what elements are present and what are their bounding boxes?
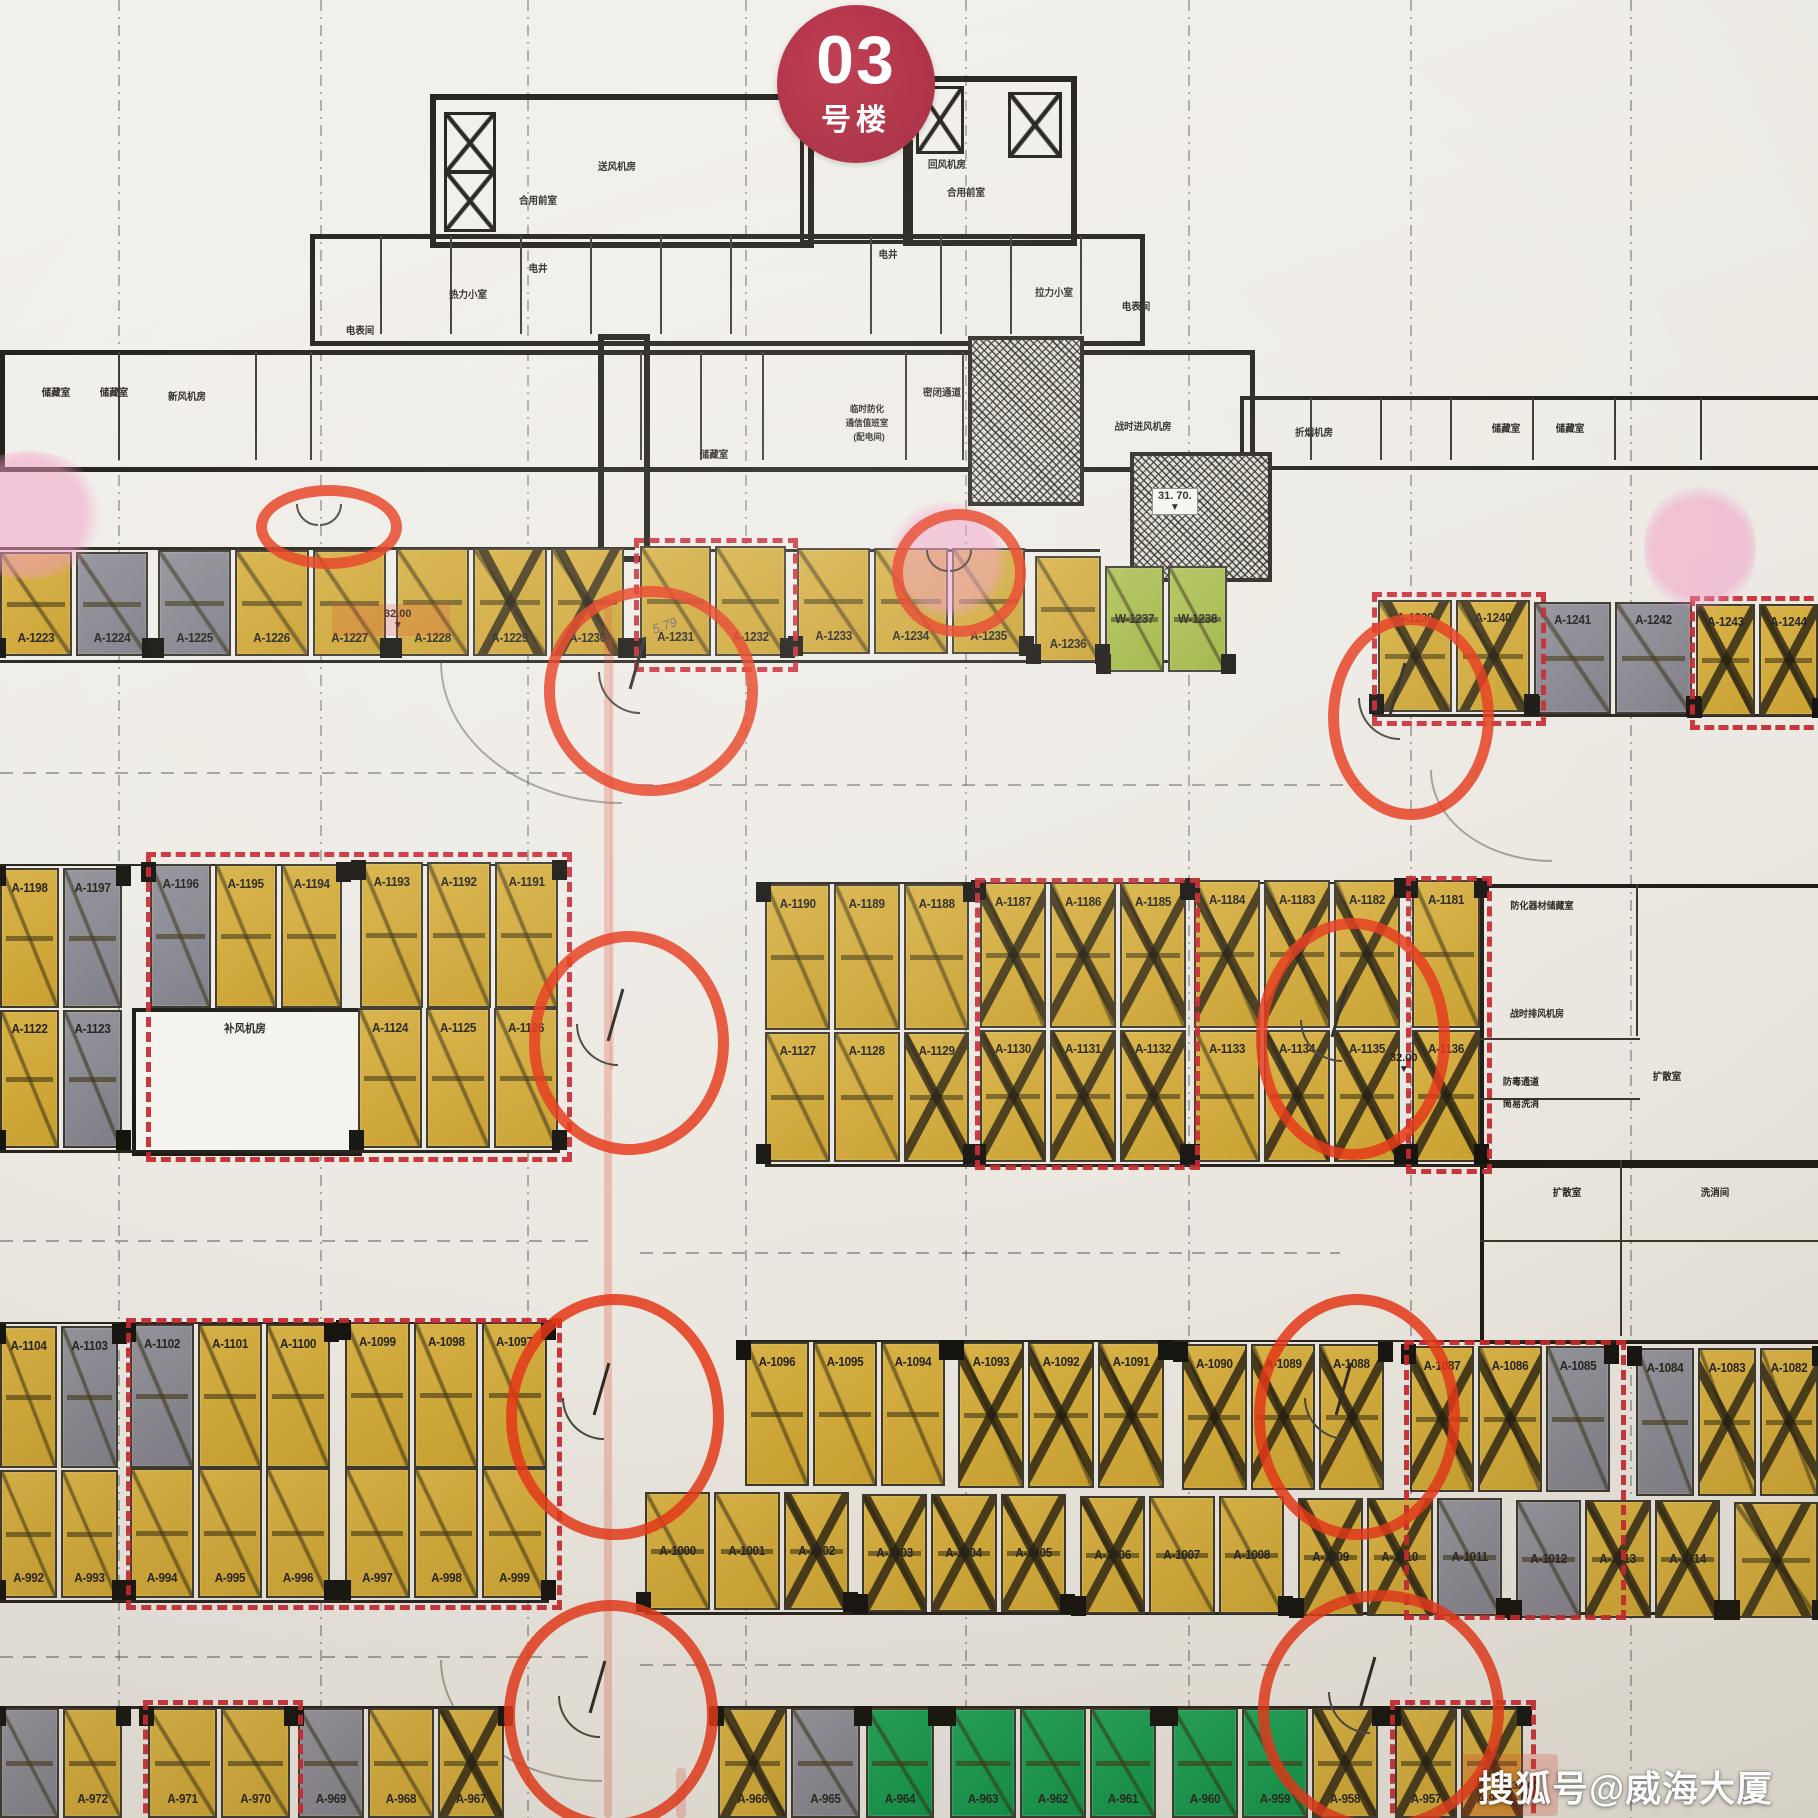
parking-block: A-1236: [1035, 556, 1101, 662]
parking-stall: A-1083: [1698, 1348, 1756, 1496]
stall-label: A-965: [796, 1791, 855, 1806]
building-number: 03: [777, 21, 935, 99]
wall-partition: [310, 352, 312, 460]
stall-label: A-1241: [1540, 612, 1606, 627]
structural-column: [1289, 1598, 1304, 1618]
stall-label: A-1004: [936, 1545, 991, 1560]
stall-bumper-line: [1200, 1094, 1253, 1099]
stall-bumper-line: [887, 1412, 939, 1417]
stall-label: A-1003: [867, 1545, 922, 1560]
structural-column: [1163, 1706, 1178, 1726]
stall-label: A-961: [1095, 1791, 1151, 1806]
parking-stall: A-1190: [765, 884, 830, 1030]
wall-partition: [590, 236, 592, 334]
triangle-down-icon: ▼: [1158, 502, 1192, 513]
wall-partition: [1636, 884, 1638, 1036]
stall-label: A-1103: [66, 1338, 114, 1353]
structural-column: [941, 1706, 956, 1726]
stall-bumper-line: [6, 1077, 53, 1082]
structural-column: [1158, 1340, 1173, 1360]
parking-stall: A-1127: [765, 1032, 830, 1162]
parking-stall: A-1233: [797, 548, 870, 654]
parking-stall: A-1104: [0, 1326, 57, 1468]
parking-block: A-1096A-1095A-1094: [745, 1342, 945, 1486]
stall-label: A-960: [1177, 1791, 1233, 1806]
red-annotation-circle: [892, 509, 1026, 637]
stall-bumper-line: [1026, 1761, 1079, 1766]
building-wall: [1480, 884, 1818, 1168]
room-label: 密闭通道: [912, 384, 973, 399]
aisle-centerline: [640, 784, 1360, 786]
stall-label: A-1093: [963, 1354, 1019, 1369]
structural-column: [857, 1706, 872, 1726]
stall-label: A-1224: [81, 630, 142, 645]
structural-column: [736, 1340, 751, 1360]
structural-column: [1096, 654, 1111, 674]
building-wall: [1480, 1160, 1818, 1344]
structural-column: [756, 1144, 771, 1164]
red-annotation-circle: [256, 485, 402, 569]
parking-stall: A-1225: [158, 550, 231, 656]
structural-column: [387, 638, 402, 658]
parking-stall: A-1003: [862, 1494, 927, 1612]
stall-label: A-1242: [1621, 612, 1687, 627]
room-label: 电井: [869, 246, 907, 261]
parking-stall: A-1133: [1194, 1030, 1260, 1162]
elevator-shaft-icon: [444, 170, 496, 232]
room-label: 战时排风机房: [1489, 1006, 1586, 1020]
stall-bumper-line: [242, 601, 302, 606]
wall-partition: [700, 352, 702, 460]
stall-label: A-993: [66, 1570, 114, 1585]
structural-column: [1173, 1342, 1188, 1362]
parking-stall: A-1002: [784, 1492, 849, 1610]
stall-bumper-line: [872, 1761, 927, 1766]
stall-label: A-1236: [1040, 636, 1096, 651]
red-annotation-circle: [1254, 1294, 1460, 1540]
parking-stall: A-967: [438, 1708, 504, 1818]
red-annotation-circle: [1328, 614, 1494, 820]
aisle-centerline: [640, 1252, 1340, 1254]
stall-label: A-992: [5, 1570, 53, 1585]
stall-bumper-line: [1541, 656, 1604, 661]
room-label: 战时进风机房: [1098, 418, 1187, 433]
red-dashed-outline: [146, 852, 572, 1162]
stall-label: A-1001: [719, 1543, 774, 1558]
stall-bumper-line: [1041, 607, 1094, 612]
parking-stall: A-1090: [1182, 1344, 1247, 1490]
parking-stall: A-1001: [714, 1492, 779, 1610]
parking-block: A-964: [866, 1708, 934, 1818]
structural-column: [0, 1130, 6, 1150]
parking-stall: A-1094: [881, 1342, 945, 1486]
room-label: 临时防化: [838, 402, 897, 415]
parking-stall: A-1197: [63, 868, 122, 1008]
wall-partition: [450, 236, 452, 334]
stall-label: A-972: [68, 1791, 118, 1806]
parking-stall: A-1093: [958, 1342, 1024, 1488]
parking-block: A-1241A-1242: [1534, 602, 1692, 714]
stall-label: A-1197: [68, 880, 118, 895]
parking-block: A-963A-962A-961: [950, 1708, 1156, 1818]
structural-column: [0, 1580, 6, 1600]
wall-partition: [905, 352, 907, 460]
parking-floor-plan: 03 号楼 搜狐号@威海大厦 储藏室储藏室新风机房电表间热力小室电井合用前室送风…: [0, 0, 1818, 1818]
parking-block: [1734, 1502, 1818, 1618]
stall-bumper-line: [771, 955, 824, 960]
room-label: 新风机房: [154, 388, 221, 403]
stall-bumper-line: [819, 1412, 871, 1417]
structural-column: [1812, 1346, 1818, 1366]
stall-label: A-1225: [163, 630, 225, 645]
wall-partition: [730, 236, 732, 334]
red-annotation-circle: [504, 1600, 718, 1818]
stall-label: A-1233: [802, 628, 864, 643]
stall-bumper-line: [841, 1095, 894, 1100]
structural-column: [949, 1340, 964, 1360]
structural-column: [1026, 644, 1041, 664]
stall-label: A-1090: [1187, 1356, 1242, 1371]
stall-label: A-1007: [1154, 1547, 1209, 1562]
wall-partition: [255, 352, 257, 460]
room-label: 防化器材储藏室: [1489, 898, 1595, 912]
stall-label: A-962: [1025, 1791, 1081, 1806]
wall-partition: [1614, 398, 1616, 460]
parking-stall: A-1095: [813, 1342, 877, 1486]
stall-bumper-line: [804, 599, 864, 604]
parking-block: A-1104A-1103: [0, 1326, 118, 1468]
parking-stall: A-1224: [76, 552, 148, 656]
structural-column: [1627, 1346, 1642, 1366]
stall-bumper-line: [1642, 1420, 1688, 1425]
room-label: 电表间: [1109, 298, 1162, 313]
structural-column: [149, 638, 164, 658]
stall-label: A-966: [723, 1791, 782, 1806]
stall-label: A-969: [303, 1791, 359, 1806]
room-label: 通信值班室: [834, 416, 901, 429]
room-label: 补风机房: [205, 1020, 285, 1036]
stall-label: A-1084: [1641, 1360, 1690, 1375]
stall-bumper-line: [751, 1412, 803, 1417]
parking-block: W-1237W-1238: [1105, 566, 1227, 672]
parking-block: A-969A-968A-967: [298, 1708, 504, 1818]
parking-stall: A-1184: [1194, 880, 1260, 1028]
stall-label: A-1094: [886, 1354, 940, 1369]
stall-label: A-1096: [750, 1354, 804, 1369]
elevation-value: 31. 70.: [1158, 490, 1192, 502]
parking-stall: A-1103: [61, 1326, 118, 1468]
stall-label: A-1008: [1224, 1547, 1279, 1562]
stall-bumper-line: [6, 1761, 53, 1766]
wall-partition: [762, 352, 764, 460]
stall-label: A-1127: [770, 1043, 825, 1058]
parking-stall: A-964: [866, 1708, 934, 1818]
red-annotation-circle: [506, 1294, 724, 1540]
stall-label: A-1091: [1103, 1354, 1159, 1369]
wall-partition: [640, 352, 642, 460]
parking-block: A-972: [0, 1708, 122, 1818]
building-number-suffix: 号楼: [777, 95, 935, 139]
stall-label: A-1082: [1765, 1360, 1814, 1375]
stall-bumper-line: [7, 602, 66, 607]
stall-bumper-line: [6, 1395, 52, 1400]
parking-stall: A-962: [1020, 1708, 1086, 1818]
room-label: 拉力小室: [1024, 284, 1085, 299]
parking-stall: A-1188: [904, 884, 969, 1030]
parking-stall: A-1084: [1636, 1348, 1694, 1496]
parking-block: A-1198A-1197: [0, 868, 122, 1008]
wall-partition: [380, 236, 382, 334]
parking-block: A-1084A-1083A-1082: [1636, 1348, 1818, 1496]
stall-label: A-1014: [1660, 1551, 1715, 1566]
parking-stall: W-1238: [1168, 566, 1227, 672]
building-wall: [310, 234, 1145, 346]
parking-block: A-1093A-1092A-1091: [958, 1342, 1164, 1488]
stall-label: W-1238: [1173, 611, 1223, 626]
structural-column: [1221, 654, 1236, 674]
stall-label: A-964: [871, 1791, 929, 1806]
red-dashed-outline: [1690, 596, 1818, 730]
parking-stall: A-968: [368, 1708, 434, 1818]
red-annotation-circle: [529, 931, 729, 1155]
parking-stall: A-1198: [0, 868, 59, 1008]
wall-partition: [1380, 398, 1382, 460]
wall-partition: [940, 236, 942, 334]
stall-label: A-1104: [5, 1338, 53, 1353]
structural-column: [1812, 1600, 1818, 1620]
stall-label: A-1129: [909, 1043, 964, 1058]
stall-label: A-1133: [1199, 1041, 1255, 1056]
stall-label: A-1083: [1703, 1360, 1752, 1375]
wall-partition: [962, 352, 964, 460]
parking-stall: [1734, 1502, 1818, 1618]
structural-column: [1725, 1600, 1740, 1620]
aisle-centerline: [640, 1664, 1290, 1666]
watermark: 搜狐号@威海大厦: [1478, 1760, 1773, 1812]
stall-label: A-1000: [650, 1543, 705, 1558]
stall-bumper-line: [1096, 1761, 1149, 1766]
red-dashed-outline: [975, 878, 1200, 1170]
parking-stall: A-1122: [0, 1010, 59, 1148]
parking-stall: A-965: [791, 1708, 860, 1818]
room-label: 扩散室: [1641, 1068, 1692, 1083]
wall-partition: [1700, 398, 1702, 460]
red-annotation-circle: [544, 586, 758, 796]
parking-block: A-966A-965: [718, 1708, 860, 1818]
parking-stall: A-1236: [1035, 556, 1101, 662]
stall-bumper-line: [771, 1095, 824, 1100]
stall-label: A-1002: [789, 1543, 844, 1558]
stall-label: A-1229: [479, 630, 541, 645]
parking-block: A-1127A-1128A-1129: [765, 1032, 969, 1162]
room-label: 储藏室: [1479, 420, 1532, 435]
parking-stall: A-1242: [1615, 602, 1692, 714]
room-label: 电井: [519, 260, 557, 275]
stall-bumper-line: [956, 1761, 1009, 1766]
stall-label: A-1123: [68, 1021, 118, 1036]
elevation-marker: 31. 70.▼: [1152, 488, 1198, 515]
parking-block: A-992A-993: [0, 1470, 118, 1598]
room-label: 合用前室: [508, 192, 569, 207]
room-label: 扩散室: [1541, 1184, 1592, 1199]
wall-partition: [520, 236, 522, 334]
stall-label: A-1198: [5, 880, 55, 895]
parking-stall: A-1092: [1028, 1342, 1094, 1488]
parking-block: A-1190A-1189A-1188: [765, 884, 969, 1030]
parking-stall: A-1129: [904, 1032, 969, 1162]
room-label: 回风机房: [914, 156, 981, 171]
elevator-shaft-icon: [444, 112, 496, 174]
parking-stall: A-966: [718, 1708, 787, 1818]
parking-stall: A-1082: [1760, 1348, 1818, 1496]
stall-label: A-1092: [1033, 1354, 1089, 1369]
red-dashed-outline: [126, 1318, 562, 1610]
wall-partition: [660, 236, 662, 334]
aisle-centerline: [0, 1240, 598, 1242]
stall-bumper-line: [1178, 1761, 1231, 1766]
structural-column: [853, 1594, 868, 1614]
stall-bumper-line: [910, 955, 963, 960]
stall-bumper-line: [69, 1077, 116, 1082]
parking-stall: A-1226: [235, 550, 308, 656]
stall-bumper-line: [1622, 656, 1685, 661]
stall-label: W-1237: [1110, 611, 1160, 626]
parking-block: A-1006A-1007A-1008: [1080, 1496, 1284, 1614]
parking-stall: A-1228: [396, 548, 469, 656]
stall-bumper-line: [69, 936, 116, 941]
stall-bumper-line: [841, 955, 894, 960]
parking-stall: A-1004: [931, 1494, 996, 1612]
wall-partition: [1480, 1038, 1640, 1040]
aisle-centerline: [0, 1656, 598, 1658]
structural-column: [0, 1706, 6, 1726]
room-label: 储藏室: [1543, 420, 1596, 435]
room-label: 简易洗消: [1488, 1096, 1555, 1110]
stall-label: A-1009: [1303, 1549, 1358, 1564]
hatched-room: [1130, 452, 1272, 582]
stall-label: A-1122: [5, 1021, 55, 1036]
building-badge: 03 号楼: [777, 5, 935, 163]
stall-label: A-1095: [818, 1354, 872, 1369]
parking-stall: A-1189: [834, 884, 899, 1030]
stall-bumper-line: [67, 1395, 113, 1400]
parking-stall: A-1014: [1655, 1500, 1720, 1618]
wall-partition: [1620, 1160, 1622, 1336]
parking-stall: A-1123: [63, 1010, 122, 1148]
red-dashed-outline: [143, 1700, 303, 1818]
room-label: 折烟机房: [1284, 424, 1345, 439]
room-label: 电表间: [333, 322, 386, 337]
stall-bumper-line: [6, 936, 53, 941]
structural-column: [1071, 1596, 1086, 1616]
building-wall: [598, 334, 650, 562]
red-annotation-circle: [1256, 918, 1450, 1160]
stall-bumper-line: [69, 1761, 116, 1766]
parking-stall: A-992: [0, 1470, 57, 1598]
room-label: 洗消间: [1689, 1184, 1740, 1199]
structural-column: [0, 1324, 6, 1344]
red-marker-line: [332, 604, 450, 636]
room-label: 送风机房: [584, 158, 651, 173]
stall-label: A-963: [955, 1791, 1011, 1806]
parking-stall: A-1096: [745, 1342, 809, 1486]
structural-column: [116, 1706, 131, 1726]
parking-stall: A-1229: [473, 548, 546, 656]
pink-highlight: [1644, 480, 1756, 616]
stall-bumper-line: [165, 601, 225, 606]
wall-partition: [1480, 1240, 1818, 1242]
parking-stall: A-963: [950, 1708, 1016, 1818]
structural-column: [0, 866, 6, 886]
parking-stall: A-1008: [1219, 1496, 1284, 1614]
parking-stall: A-972: [63, 1708, 122, 1818]
parking-stall: A-1005: [1001, 1494, 1066, 1612]
stall-label: A-1190: [770, 896, 825, 911]
parking-stall: A-1006: [1080, 1496, 1145, 1614]
parking-block: A-1003A-1004A-1005: [862, 1494, 1066, 1612]
stall-bumper-line: [83, 602, 142, 607]
elevator-shaft-icon: [1008, 92, 1062, 158]
parking-stall: W-1237: [1105, 566, 1164, 672]
stall-label: A-968: [373, 1791, 429, 1806]
parking-block: A-1122A-1123: [0, 1010, 122, 1148]
room-label: 储藏室: [86, 384, 143, 399]
wall-partition: [118, 352, 120, 460]
stall-bumper-line: [304, 1761, 357, 1766]
hatched-room: [968, 336, 1084, 506]
room-label: 防毒通道: [1488, 1074, 1555, 1088]
structural-column: [116, 866, 131, 886]
room-label: 热力小室: [438, 286, 499, 301]
room-label: (配电间): [841, 430, 896, 443]
stall-label: A-1128: [839, 1043, 894, 1058]
stall-label: A-1183: [1269, 892, 1325, 907]
stall-label: A-1184: [1199, 892, 1255, 907]
stall-label: A-1226: [241, 630, 303, 645]
stall-label: A-1005: [1006, 1545, 1061, 1560]
stall-bumper-line: [6, 1532, 52, 1537]
room-label: 合用前室: [936, 184, 997, 199]
wall-partition: [1010, 236, 1012, 334]
stall-bumper-line: [798, 1761, 854, 1766]
stall-label: A-967: [443, 1791, 499, 1806]
room-label: 储藏室: [28, 384, 85, 399]
parking-stall: A-961: [1090, 1708, 1156, 1818]
red-annotation-circle: [1258, 1590, 1504, 1818]
parking-stall: A-993: [61, 1470, 118, 1598]
room-label: 储藏室: [686, 446, 743, 461]
parking-stall: A-960: [1172, 1708, 1238, 1818]
structural-column: [116, 1130, 131, 1150]
stall-label: A-1223: [5, 630, 66, 645]
stall-bumper-line: [374, 1761, 427, 1766]
structural-column: [756, 882, 771, 902]
stall-label: A-1189: [839, 896, 894, 911]
parking-stall: A-969: [298, 1708, 364, 1818]
structural-column: [0, 638, 6, 658]
stall-bumper-line: [67, 1532, 113, 1537]
parking-stall: A-1128: [834, 1032, 899, 1162]
parking-stall: A-1091: [1098, 1342, 1164, 1488]
stall-label: A-1182: [1339, 892, 1395, 907]
stall-label: A-1188: [909, 896, 964, 911]
parking-stall: [0, 1708, 59, 1818]
wall-partition: [1450, 398, 1452, 460]
stall-label: A-1006: [1085, 1547, 1140, 1562]
parking-stall: A-1007: [1149, 1496, 1214, 1614]
